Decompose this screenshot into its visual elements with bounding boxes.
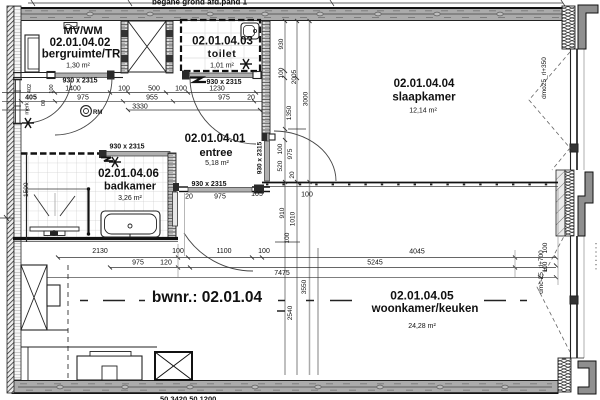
svg-text:toilet: toilet (208, 48, 237, 60)
svg-text:405: 405 (25, 95, 37, 102)
svg-text:100: 100 (542, 242, 549, 253)
svg-text:100: 100 (49, 84, 55, 93)
svg-text:100: 100 (542, 261, 549, 272)
svg-text:1400: 1400 (65, 86, 81, 93)
svg-text:930 x 2315: 930 x 2315 (62, 78, 97, 85)
svg-text:02.01.04.01: 02.01.04.01 (185, 133, 246, 145)
svg-text:entree: entree (199, 147, 232, 159)
svg-text:100: 100 (118, 86, 130, 93)
svg-text:dmo25_rl+350: dmo25_rl+350 (541, 57, 548, 99)
svg-text:520: 520 (277, 160, 284, 171)
svg-text:slaapkamer: slaapkamer (392, 92, 456, 104)
svg-text:3330: 3330 (132, 104, 148, 111)
svg-text:02.01.04.02: 02.01.04.02 (50, 37, 111, 49)
svg-text:7475: 7475 (274, 270, 290, 277)
svg-text:begane grond afd.pand 1: begane grond afd.pand 1 (152, 0, 248, 7)
svg-text:bergruimte/TR: bergruimte/TR (42, 49, 121, 61)
svg-text:20: 20 (185, 194, 193, 201)
svg-text:930 x 2315: 930 x 2315 (191, 181, 226, 188)
svg-text:1100: 1100 (216, 248, 231, 255)
svg-text:930 x 2315: 930 x 2315 (109, 144, 144, 151)
svg-text:12,14 m²: 12,14 m² (409, 108, 437, 115)
svg-text:105: 105 (251, 191, 263, 198)
svg-text:500: 500 (148, 86, 160, 93)
svg-text:930 x 2315: 930 x 2315 (257, 141, 264, 174)
svg-text:120: 120 (160, 260, 172, 267)
svg-text:1230: 1230 (209, 86, 225, 93)
svg-text:100: 100 (278, 67, 285, 78)
svg-text:02.01.04.05: 02.01.04.05 (390, 289, 454, 303)
svg-text:20: 20 (247, 95, 255, 102)
svg-text:RM: RM (93, 110, 102, 116)
svg-text:100: 100 (301, 192, 313, 199)
svg-text:1,01 m²: 1,01 m² (210, 63, 234, 70)
svg-text:975: 975 (218, 95, 230, 102)
svg-text:50 3420 50 1200: 50 3420 50 1200 (160, 395, 216, 400)
svg-text:20: 20 (289, 171, 296, 179)
svg-text:1,30 m²: 1,30 m² (66, 63, 90, 70)
svg-text:badkamer: badkamer (104, 181, 157, 193)
svg-text:4045: 4045 (409, 249, 425, 256)
svg-text:2130: 2130 (92, 248, 108, 255)
svg-text:975: 975 (77, 95, 89, 102)
svg-text:3,26 m²: 3,26 m² (118, 195, 142, 202)
svg-text:1350: 1350 (286, 105, 293, 120)
svg-text:woonkamer/keuken: woonkamer/keuken (371, 303, 479, 315)
svg-text:02.01.04.04: 02.01.04.04 (394, 78, 455, 90)
svg-text:1010: 1010 (290, 211, 297, 226)
svg-text:975: 975 (132, 260, 144, 267)
svg-text:100: 100 (175, 86, 187, 93)
svg-text:930: 930 (278, 38, 285, 49)
svg-text:100: 100 (258, 248, 270, 255)
svg-text:5,18 m²: 5,18 m² (205, 160, 229, 167)
svg-text:02.01.04.06: 02.01.04.06 (98, 168, 159, 180)
svg-text:100: 100 (277, 143, 284, 154)
svg-text:3000: 3000 (303, 91, 310, 106)
svg-text:24,28 m²: 24,28 m² (408, 323, 436, 330)
svg-text:910: 910 (279, 207, 286, 218)
svg-text:955: 955 (146, 95, 158, 102)
svg-text:402: 402 (27, 84, 33, 93)
svg-text:2005: 2005 (291, 69, 298, 84)
svg-text:MV/WM: MV/WM (63, 25, 102, 37)
svg-text:975: 975 (214, 194, 226, 201)
svg-text:00: 00 (41, 100, 47, 106)
svg-text:merk: merk (25, 102, 31, 114)
svg-text:3550: 3550 (301, 279, 308, 294)
svg-text:02.01.04.03: 02.01.04.03 (192, 36, 253, 48)
svg-text:bwnr.: 02.01.04: bwnr.: 02.01.04 (152, 289, 263, 306)
svg-text:2540: 2540 (287, 305, 294, 320)
svg-text:5245: 5245 (367, 260, 383, 267)
svg-text:975: 975 (287, 148, 294, 159)
